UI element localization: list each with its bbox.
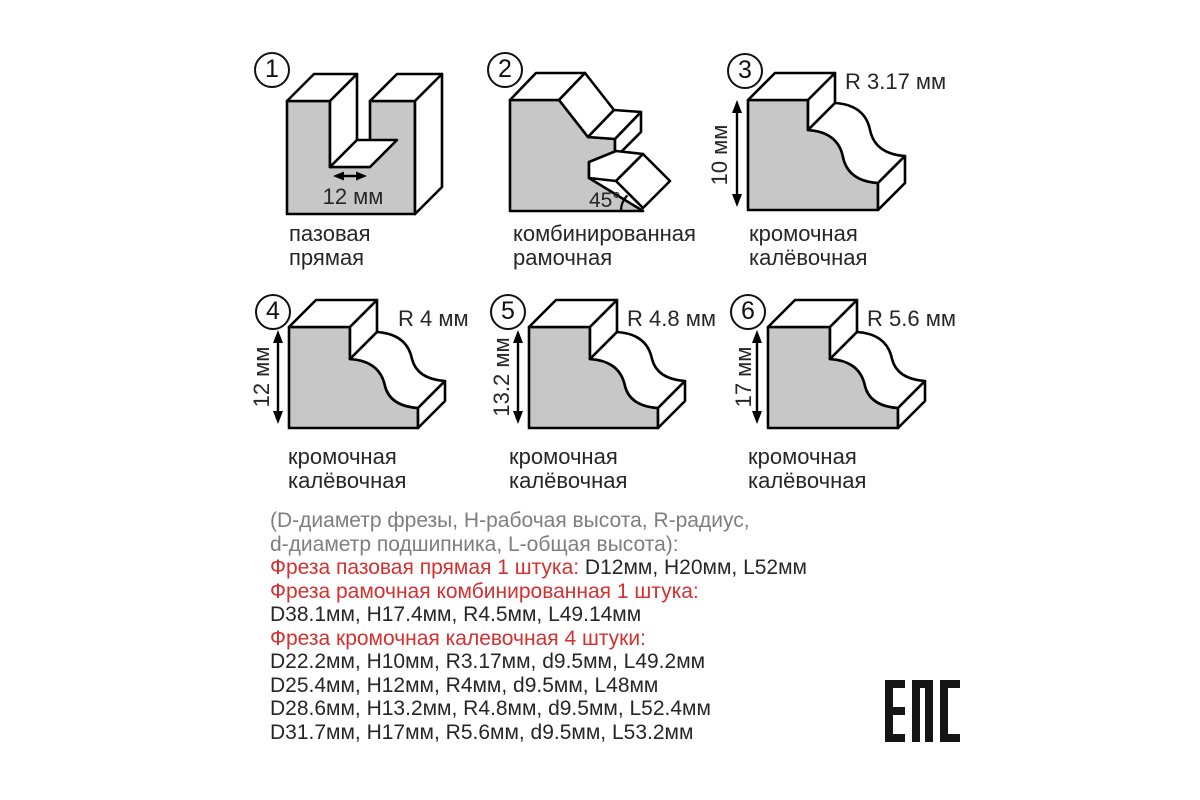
spec-line: D22.2мм, H10мм, R3.17мм, d9.5мм, L49.2мм bbox=[270, 650, 807, 674]
figure-3-number: 3 bbox=[727, 53, 763, 89]
spec-line: Фреза пазовая прямая 1 штука: D12мм, H20… bbox=[270, 556, 807, 580]
figure-4-caption: кромочная калёвочная bbox=[288, 445, 406, 492]
caption-line: кромочная bbox=[509, 445, 627, 469]
spec-item-title: Фреза рамочная комбинированная 1 штука: bbox=[270, 580, 699, 603]
figure-4-arrowhead-bottom bbox=[273, 411, 283, 424]
caption-line: комбинированная bbox=[513, 222, 696, 246]
figure-1-number: 1 bbox=[254, 52, 290, 88]
spec-line: d-диаметр подшипника, L-общая высота): bbox=[270, 533, 807, 557]
caption-line: кромочная bbox=[748, 445, 866, 469]
spec-line: Фреза кромочная калевочная 4 штуки: bbox=[270, 627, 807, 651]
eac-letter-e-top bbox=[885, 680, 905, 688]
spec-legend: d-диаметр подшипника, L-общая высота): bbox=[270, 533, 679, 556]
figure-6-radius-label: R 5.6 мм bbox=[867, 306, 956, 332]
spec-line: (D-диаметр фрезы, H-рабочая высота, R-ра… bbox=[270, 509, 807, 533]
spec-text-block: (D-диаметр фрезы, H-рабочая высота, R-ра… bbox=[270, 509, 807, 744]
spec-line: D31.7мм, H17мм, R5.6мм, d9.5мм, L53.2мм bbox=[270, 721, 807, 745]
spec-item-value: D22.2мм, H10мм, R3.17мм, d9.5мм, L49.2мм bbox=[270, 650, 705, 673]
figure-3-radius-label: R 3.17 мм bbox=[845, 69, 946, 95]
spec-line: D25.4мм, H12мм, R4мм, d9.5мм, L48мм bbox=[270, 674, 807, 698]
figure-4-arrowhead-top bbox=[273, 330, 283, 343]
spec-line: D28.6мм, H13.2мм, R4.8мм, d9.5мм, L52.4м… bbox=[270, 697, 807, 721]
figure-2-angle-label: 45° bbox=[589, 189, 621, 213]
spec-item-value: D28.6мм, H13.2мм, R4.8мм, d9.5мм, L52.4м… bbox=[270, 697, 711, 720]
figure-6-caption: кромочная калёвочная bbox=[748, 445, 866, 492]
eac-letter-e-mid bbox=[885, 707, 905, 715]
spec-item-title: Фреза пазовая прямая 1 штука: bbox=[270, 556, 579, 579]
caption-line: калёвочная bbox=[288, 469, 406, 493]
caption-line: рамочная bbox=[513, 246, 696, 270]
spec-line: D38.1мм, H17.4мм, R4.5мм, L49.14мм bbox=[270, 603, 807, 627]
figure-5-caption: кромочная калёвочная bbox=[509, 445, 627, 492]
figure-3-caption: кромочная калёвочная bbox=[749, 222, 867, 269]
figure-2-number: 2 bbox=[487, 52, 523, 88]
eac-mark bbox=[885, 680, 960, 742]
eac-letter-c-stem bbox=[940, 680, 948, 742]
caption-line: кромочная bbox=[288, 445, 406, 469]
figure-1-width-label: 12 мм bbox=[320, 184, 386, 210]
figure-3-height-label: 10 мм bbox=[708, 95, 732, 215]
eac-letter-a-left bbox=[912, 680, 920, 742]
spec-item-value: D38.1мм, H17.4мм, R4.5мм, L49.14мм bbox=[270, 603, 641, 626]
figure-4-height-label: 12 мм bbox=[250, 317, 274, 437]
figure-3-arrowhead-bottom bbox=[732, 194, 742, 207]
eac-letter-c-bottom bbox=[940, 734, 960, 742]
eac-letter-a-top bbox=[912, 680, 933, 688]
figure-2-caption: комбинированная рамочная bbox=[513, 222, 696, 269]
figure-1-caption: пазовая прямая bbox=[289, 222, 371, 269]
caption-line: калёвочная bbox=[748, 469, 866, 493]
caption-line: калёвочная bbox=[749, 246, 867, 270]
eac-letter-a-right bbox=[925, 680, 933, 742]
figure-4-radius-label: R 4 мм bbox=[398, 306, 469, 332]
caption-line: калёвочная bbox=[509, 469, 627, 493]
eac-letter-e-bottom bbox=[885, 734, 905, 742]
caption-line: прямая bbox=[289, 246, 371, 270]
spec-item-value: D12мм, H20мм, L52мм bbox=[579, 556, 807, 579]
spec-legend: (D-диаметр фрезы, H-рабочая высота, R-ра… bbox=[270, 509, 750, 532]
figure-3-arrowhead-top bbox=[732, 100, 742, 113]
spec-line: Фреза рамочная комбинированная 1 штука: bbox=[270, 580, 807, 604]
spec-item-value: D25.4мм, H12мм, R4мм, d9.5мм, L48мм bbox=[270, 674, 658, 697]
caption-line: пазовая bbox=[289, 222, 371, 246]
eac-letter-c-top bbox=[940, 680, 960, 688]
caption-line: кромочная bbox=[749, 222, 867, 246]
infographic-page: 1 2 3 4 5 6 12 мм 45° R 3.17 мм R 4 мм R… bbox=[0, 0, 1200, 800]
spec-item-value: D31.7мм, H17мм, R5.6мм, d9.5мм, L53.2мм bbox=[270, 721, 693, 744]
figure-5-height-label: 13.2 мм bbox=[490, 317, 514, 437]
figure-5-radius-label: R 4.8 мм bbox=[627, 306, 716, 332]
spec-item-title: Фреза кромочная калевочная 4 штуки: bbox=[270, 627, 646, 650]
figure-6-height-label: 17 мм bbox=[732, 317, 756, 437]
